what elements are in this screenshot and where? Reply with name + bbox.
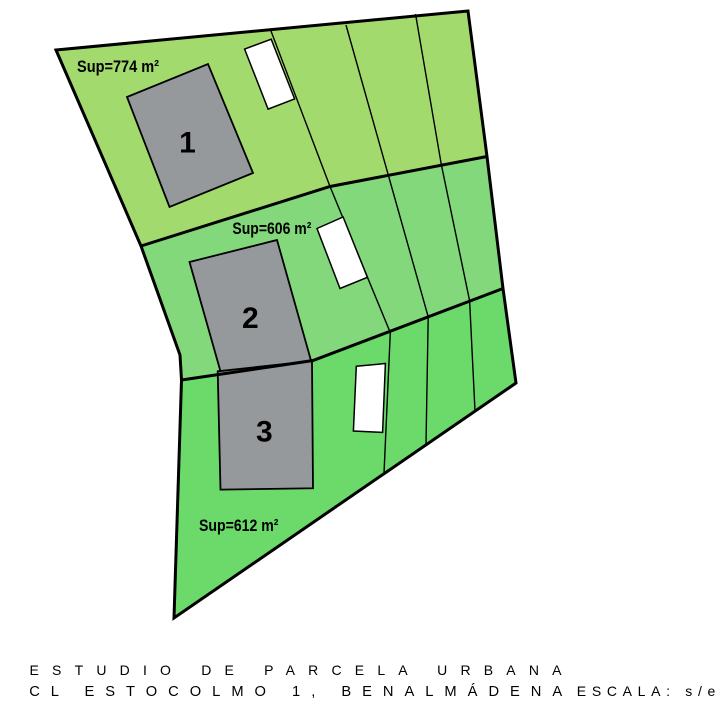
svg-text:Sup=606 m²: Sup=606 m² bbox=[232, 219, 311, 238]
svg-text:Sup=774 m²: Sup=774 m² bbox=[77, 57, 159, 76]
svg-text:1: 1 bbox=[179, 126, 196, 159]
svg-text:3: 3 bbox=[256, 415, 273, 448]
svg-text:Sup=612 m²: Sup=612 m² bbox=[199, 516, 279, 535]
svg-text:2: 2 bbox=[242, 302, 259, 335]
